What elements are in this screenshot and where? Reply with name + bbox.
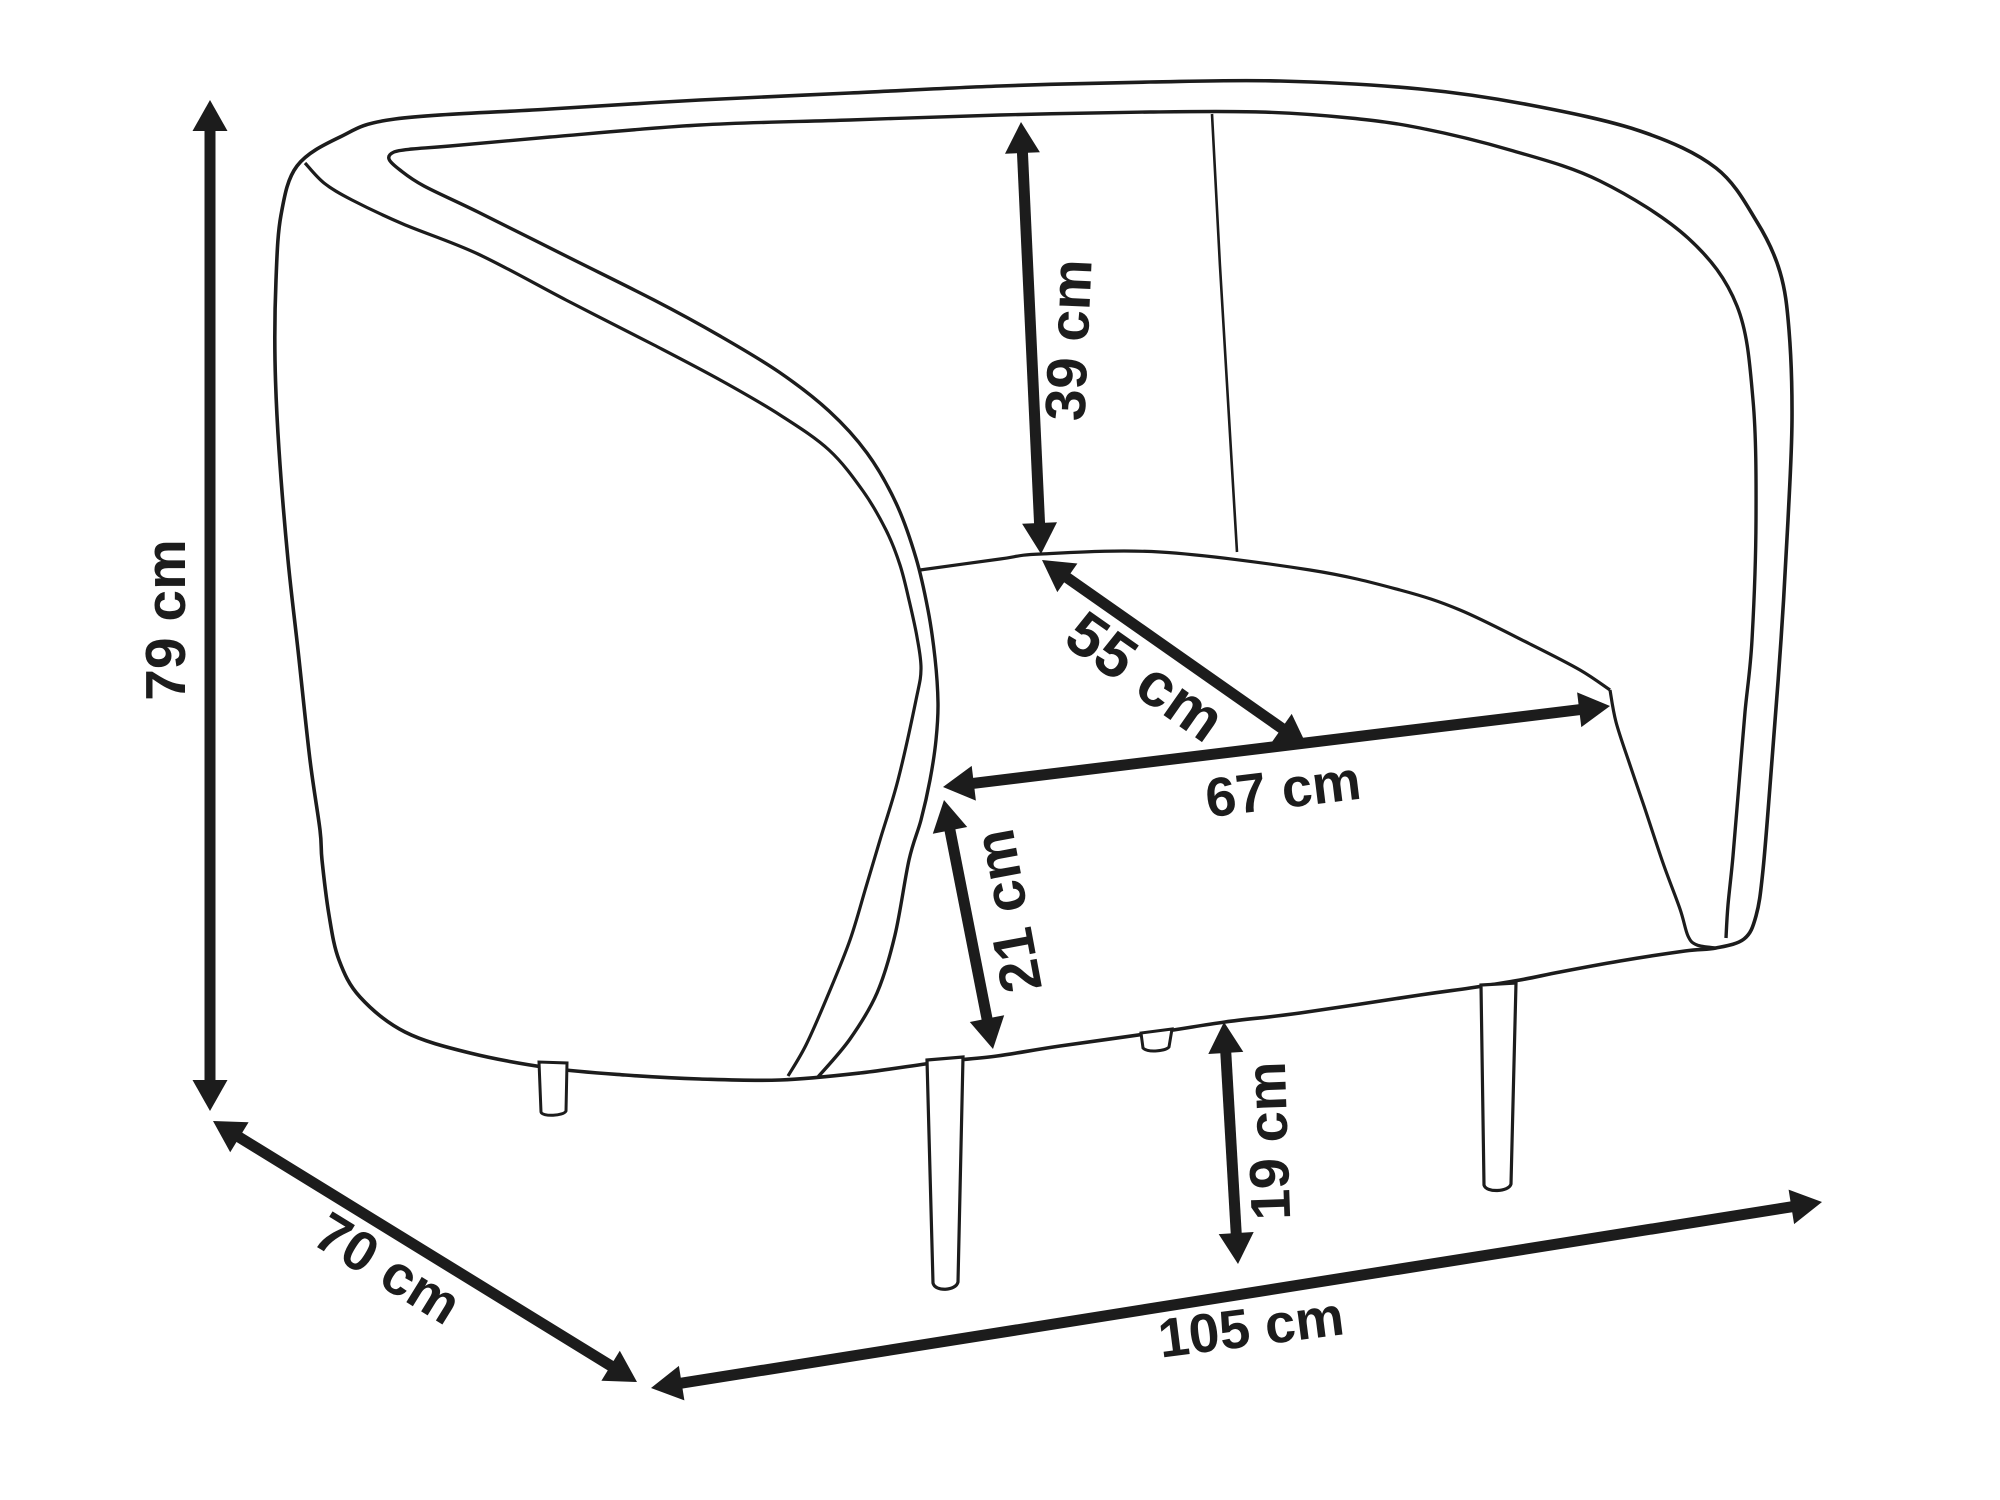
svg-text:39 cm: 39 cm <box>1033 258 1104 422</box>
svg-text:79 cm: 79 cm <box>134 539 198 701</box>
svg-text:19 cm: 19 cm <box>1234 1061 1303 1222</box>
